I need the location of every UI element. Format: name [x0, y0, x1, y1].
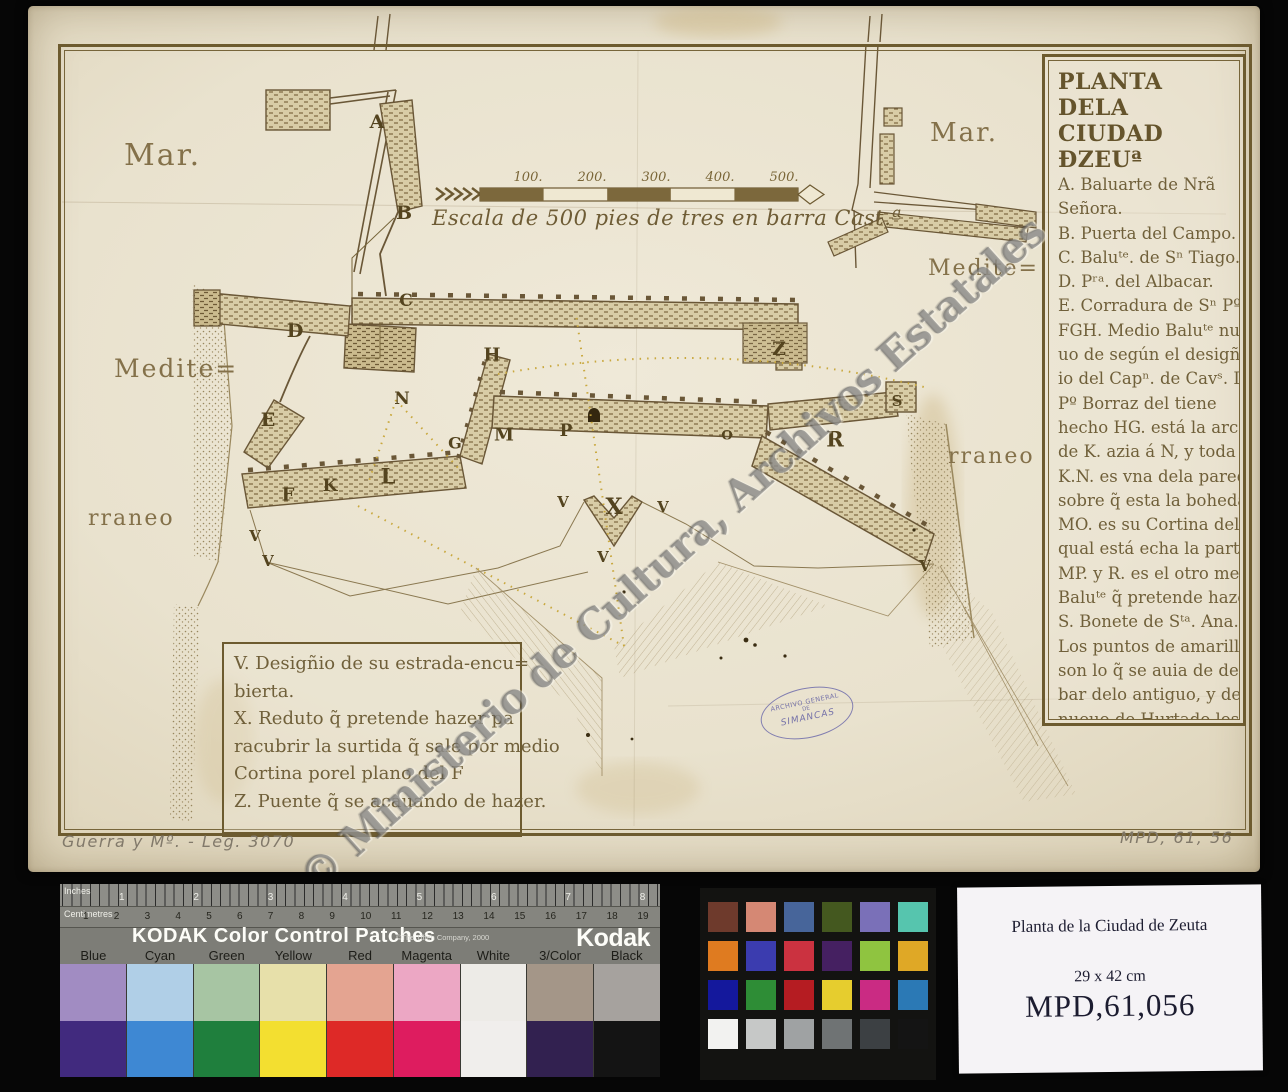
- colorchecker-patch: [822, 980, 852, 1010]
- legend-line: Baluᵗᵉ q̃ pretende hazer.: [1058, 586, 1233, 610]
- colorchecker-patch: [860, 902, 890, 932]
- legend-line: de K. azia á N, y toda la: [1058, 440, 1233, 464]
- legend-line: S. Bonete de Sᵗᵃ. Ana.: [1058, 610, 1233, 634]
- inch-number: 7: [565, 892, 571, 903]
- kodak-tint-row: [60, 964, 660, 1021]
- colorchecker-patch: [784, 980, 814, 1010]
- kodak-tint-patch-green: [194, 964, 261, 1021]
- cm-number: 5: [206, 911, 212, 922]
- scale-tick-label: 400.: [706, 170, 735, 185]
- catalog-reference: MPD,61,056: [958, 986, 1262, 1025]
- map-letter-A: A: [370, 111, 385, 133]
- pencil-annotation-right: MPD, 61, 56: [1120, 828, 1233, 847]
- scale-tick-label: 300.: [642, 170, 671, 185]
- map-letter-V: V: [657, 498, 669, 516]
- legend-text: PLANTA DELA CIUDAD ĐZEUª A. Baluarte de …: [1048, 60, 1240, 720]
- colorchecker-patch: [746, 941, 776, 971]
- cm-number: 7: [268, 911, 274, 922]
- map-letter-O: O: [721, 429, 732, 444]
- map-letter-G: G: [448, 434, 462, 453]
- map-letter-C: C: [399, 291, 413, 311]
- kodak-color-label: Cyan: [127, 948, 194, 964]
- colorchecker-card: [700, 888, 936, 1080]
- inch-number: 5: [417, 892, 423, 903]
- kodak-copyright: ©The Tiffen Company, 2000: [396, 933, 489, 942]
- map-letter-P: P: [560, 421, 573, 441]
- kodak-full-patch-cyan: [127, 1021, 194, 1078]
- legend-line: nueuo de Hurtado los: [1058, 708, 1233, 720]
- colorchecker-patch: [708, 941, 738, 971]
- colorchecker-patch: [784, 941, 814, 971]
- inch-number: 1: [119, 892, 125, 903]
- inch-number: 8: [640, 892, 646, 903]
- colorchecker-patch: [822, 1019, 852, 1049]
- kodak-saturated-row: [60, 1021, 660, 1078]
- sea-label: rraneo: [88, 506, 175, 531]
- map-letter-V: V: [597, 548, 609, 566]
- kodak-full-patch-red: [327, 1021, 394, 1078]
- legend-line: C. Baluᵗᵉ. de Sⁿ Tiago.: [1058, 246, 1233, 270]
- kodak-title-strip: KODAK Color Control Patches ©The Tiffen …: [60, 928, 660, 948]
- cm-number: 19: [637, 911, 648, 922]
- kodak-color-label: 3/Color: [527, 948, 594, 964]
- inch-ruler-label: Inches: [64, 886, 91, 896]
- colorchecker-patch: [860, 980, 890, 1010]
- sea-label: Mar.: [930, 118, 998, 148]
- map-letter-X: X: [605, 494, 622, 520]
- kodak-color-label: White: [460, 948, 527, 964]
- inch-number: 4: [342, 892, 348, 903]
- kodak-color-label: Green: [193, 948, 260, 964]
- scale-tick-label: 500.: [770, 170, 799, 185]
- archival-photo: PLANTA DELA CIUDAD ĐZEUª A. Baluarte de …: [0, 0, 1288, 1092]
- legend-line: A. Baluarte de Nrã: [1058, 173, 1233, 197]
- colorchecker-patch: [708, 1019, 738, 1049]
- legend-line: Pº Borraz del tiene: [1058, 392, 1233, 416]
- legend-line: FGH. Medio Baluᵗᵉ nue: [1058, 319, 1233, 343]
- cm-number: 9: [329, 911, 335, 922]
- cm-number: 11: [391, 911, 401, 922]
- colorchecker-patch: [784, 1019, 814, 1049]
- kodak-full-patch-black: [594, 1021, 660, 1078]
- legend-line: Señora.: [1058, 197, 1233, 221]
- cm-number: 16: [545, 911, 556, 922]
- legend-line: K.N. es vna dela paredes: [1058, 465, 1233, 489]
- colorchecker-patch: [746, 1019, 776, 1049]
- kodak-tint-patch-blue: [60, 964, 127, 1021]
- scale-caption: Escala de 500 pies de tres en barra Cast…: [432, 206, 852, 230]
- sea-label: rraneo: [948, 444, 1035, 469]
- colorchecker-patch: [784, 902, 814, 932]
- kodak-tint-patch-yellow: [260, 964, 327, 1021]
- colorchecker-patch: [746, 902, 776, 932]
- cm-number: 8: [299, 911, 305, 922]
- legend-line: qual está echa la parte: [1058, 537, 1233, 561]
- inch-number: 2: [193, 892, 199, 903]
- kodak-title: KODAK Color Control Patches: [132, 925, 436, 948]
- cm-number: 17: [576, 911, 587, 922]
- map-letter-M: M: [494, 425, 514, 446]
- map-letter-D: D: [287, 320, 303, 342]
- legend-line: MO. es su Cortina dela: [1058, 513, 1233, 537]
- notes-line: V. Desigñio de su estrada-encu=: [234, 650, 520, 678]
- legend-line: sobre q̃ esta la boheda: [1058, 489, 1233, 513]
- legend-line: uo de según el desigñ: [1058, 343, 1233, 367]
- kodak-full-patch-magenta: [394, 1021, 461, 1078]
- colorchecker-patch: [708, 902, 738, 932]
- pencil-annotation-left: Guerra y Mº. - Leg. 3070: [62, 832, 295, 851]
- cm-number: 10: [360, 911, 371, 922]
- legend-line: B. Puerta del Campo.: [1058, 222, 1233, 246]
- legend-line: E. Corradura de Sⁿ Pº: [1058, 294, 1233, 318]
- legend-line: D. Pʳᵃ. del Albacar.: [1058, 270, 1233, 294]
- map-letter-F: F: [282, 485, 295, 506]
- legend-panel: PLANTA DELA CIUDAD ĐZEUª A. Baluarte de …: [1042, 54, 1246, 726]
- kodak-color-label: Red: [327, 948, 394, 964]
- map-letter-B: B: [396, 202, 412, 224]
- kodak-full-patch-3/color: [527, 1021, 594, 1078]
- kodak-color-label: Yellow: [260, 948, 327, 964]
- cm-number: 12: [422, 911, 433, 922]
- map-letter-V: V: [262, 552, 274, 570]
- map-letter-Z: Z: [772, 338, 786, 360]
- kodak-full-patch-yellow: [260, 1021, 327, 1078]
- map-letter-V: V: [919, 557, 931, 575]
- colorchecker-patch: [822, 902, 852, 932]
- map-letter-V: V: [557, 493, 569, 511]
- catalog-title: Planta de la Ciudad de Zeuta: [957, 914, 1261, 937]
- cm-number: 1: [83, 911, 89, 922]
- kodak-full-patch-white: [461, 1021, 528, 1078]
- legend-title-line2: CIUDAD ĐZEUª: [1058, 121, 1233, 173]
- sea-label: Medite=: [114, 354, 238, 383]
- cm-number: 13: [453, 911, 464, 922]
- kodak-inch-ruler: Inches 12345678: [60, 884, 660, 907]
- colorchecker-patch: [898, 980, 928, 1010]
- colorchecker-patch: [822, 941, 852, 971]
- legend-line: bar delo antiguo, y de lo: [1058, 683, 1233, 707]
- colorchecker-patch: [898, 902, 928, 932]
- map-letter-H: H: [483, 345, 500, 366]
- map-letter-N: N: [394, 389, 410, 409]
- legend-line: Los puntos de amarillo: [1058, 635, 1233, 659]
- legend-lines: A. Baluarte de NrãSeñora.B. Puerta del C…: [1058, 173, 1233, 720]
- map-sheet: PLANTA DELA CIUDAD ĐZEUª A. Baluarte de …: [28, 6, 1260, 872]
- kodak-tint-patch-black: [594, 964, 660, 1021]
- inch-number: 3: [268, 892, 274, 903]
- map-letter-S: S: [892, 392, 903, 410]
- scale-tick-label: 200.: [578, 170, 607, 185]
- cm-number: 15: [514, 911, 525, 922]
- kodak-tint-patch-cyan: [127, 964, 194, 1021]
- kodak-tint-patch-white: [461, 964, 528, 1021]
- cm-number: 3: [145, 911, 151, 922]
- legend-line: hecho HG. está la arca: [1058, 416, 1233, 440]
- colorchecker-patch: [898, 941, 928, 971]
- cm-number: 18: [607, 911, 618, 922]
- kodak-tint-patch-red: [327, 964, 394, 1021]
- scale-tick-label: 100.: [514, 170, 543, 185]
- kodak-color-label: Black: [593, 948, 660, 964]
- colorchecker-patch: [746, 980, 776, 1010]
- colorchecker-patch: [860, 1019, 890, 1049]
- catalog-dimensions: 29 x 42 cm: [958, 966, 1262, 987]
- map-letter-K: K: [323, 476, 338, 496]
- colorchecker-patch: [898, 1019, 928, 1049]
- colorchecker-grid: [708, 902, 928, 1049]
- cm-number: 4: [175, 911, 181, 922]
- kodak-full-patch-blue: [60, 1021, 127, 1078]
- legend-line: son lo q̃ se auia de derri=: [1058, 659, 1233, 683]
- kodak-color-bar: Inches 12345678 Centimetres 123456789101…: [60, 884, 660, 1076]
- legend-line: io del Capⁿ. de Cavˢ. D.: [1058, 367, 1233, 391]
- cm-number: 2: [114, 911, 120, 922]
- colorchecker-patch: [860, 941, 890, 971]
- kodak-color-label: Magenta: [393, 948, 460, 964]
- map-letter-L: L: [381, 464, 396, 489]
- inch-number: 6: [491, 892, 497, 903]
- kodak-tint-patch-3/color: [527, 964, 594, 1021]
- cm-number: 6: [237, 911, 243, 922]
- notes-line: Cortina porel plano del F: [234, 760, 520, 788]
- colorchecker-patch: [708, 980, 738, 1010]
- map-letter-V: V: [249, 527, 261, 545]
- cm-number: 14: [483, 911, 494, 922]
- kodak-tint-patch-magenta: [394, 964, 461, 1021]
- legend-title-line1: PLANTA DELA: [1058, 69, 1233, 121]
- kodak-color-labels: BlueCyanGreenYellowRedMagentaWhite3/Colo…: [60, 948, 660, 964]
- map-letter-E: E: [261, 409, 275, 431]
- sea-label: Mar.: [124, 138, 201, 173]
- catalog-label-card: Planta de la Ciudad de Zeuta 29 x 42 cm …: [957, 884, 1263, 1073]
- kodak-color-label: Blue: [60, 948, 127, 964]
- legend-line: MP. y R. es el otro medio: [1058, 562, 1233, 586]
- kodak-full-patch-green: [194, 1021, 261, 1078]
